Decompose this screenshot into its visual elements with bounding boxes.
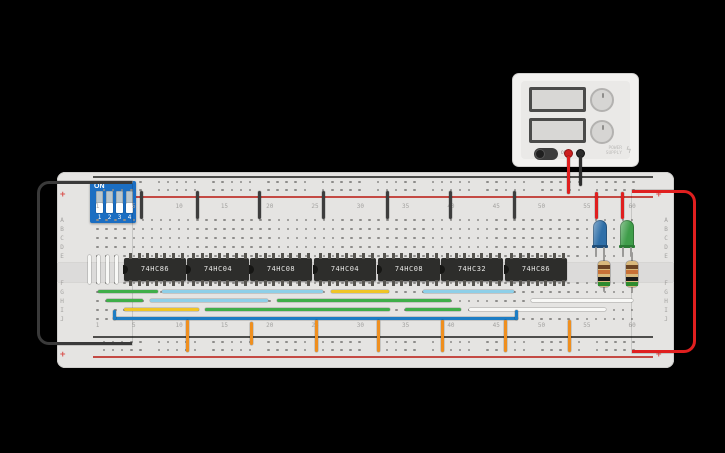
ic-pin <box>371 253 374 259</box>
breadboard-hole[interactable] <box>223 228 226 231</box>
led-blue-lead <box>595 247 597 257</box>
rail-hole[interactable] <box>404 349 407 352</box>
power-toggle-button[interactable] <box>534 148 558 160</box>
breadboard-hole[interactable] <box>359 219 362 222</box>
ic-label: 74HC04 <box>187 265 249 273</box>
ic-pin <box>426 280 429 286</box>
breadboard-hole[interactable] <box>214 237 217 240</box>
wire-j-blue-hook-left[interactable] <box>113 310 116 320</box>
breadboard-hole[interactable] <box>241 219 244 222</box>
column-label-top: 10 <box>176 203 183 210</box>
wire-led-blue-power[interactable] <box>595 192 598 219</box>
ic-pin <box>455 253 458 259</box>
ic-pin <box>226 253 229 259</box>
ic-pin <box>192 280 195 286</box>
ic-pin <box>446 253 449 259</box>
ic-pin <box>362 253 365 259</box>
breadboard-hole[interactable] <box>350 228 353 231</box>
ic-pin <box>281 280 284 286</box>
ic-pin <box>272 280 275 286</box>
ic-pin <box>336 280 339 286</box>
ic-pin <box>298 253 301 259</box>
wire-psu-positive[interactable] <box>567 156 570 194</box>
breadboard-hole[interactable] <box>205 228 208 231</box>
breadboard-hole[interactable] <box>223 237 226 240</box>
ic-pin <box>244 280 247 286</box>
breadboard-hole[interactable] <box>341 246 344 249</box>
breadboard-hole[interactable] <box>504 246 507 249</box>
rail-hole[interactable] <box>331 349 334 352</box>
breadboard-hole[interactable] <box>513 246 516 249</box>
ic-pin <box>417 253 420 259</box>
ic-pin <box>336 253 339 259</box>
wire-ground-drop-6[interactable] <box>504 320 507 352</box>
breadboard-hole[interactable] <box>196 237 199 240</box>
breadboard-hole[interactable] <box>350 237 353 240</box>
resistor-band <box>598 265 610 269</box>
breadboard-hole[interactable] <box>495 228 498 231</box>
rail-hole[interactable] <box>605 349 608 352</box>
breadboard-hole[interactable] <box>341 255 344 258</box>
ic-pin <box>392 280 395 286</box>
rail-hole[interactable] <box>404 181 407 184</box>
ic-pin <box>272 253 275 259</box>
wire-dip-3[interactable] <box>106 255 109 284</box>
power-supply-display-voltage <box>529 87 586 112</box>
ic-pin <box>392 253 395 259</box>
wire-g-cyan-1[interactable] <box>162 290 323 293</box>
wire-vcc-jumper-7[interactable] <box>513 191 516 219</box>
ic-pin <box>181 280 184 286</box>
breadboard-hole[interactable] <box>205 255 208 258</box>
column-label-top: 30 <box>357 203 364 210</box>
ic-pin <box>383 253 386 259</box>
breadboard-hole[interactable] <box>513 255 516 258</box>
breadboard-hole[interactable] <box>341 219 344 222</box>
ic-pin <box>307 253 310 259</box>
column-label-top: 55 <box>583 203 590 210</box>
breadboard-hole[interactable] <box>223 246 226 249</box>
breadboard-hole[interactable] <box>214 228 217 231</box>
ic-pin <box>409 280 412 286</box>
breadboard-hole[interactable] <box>196 282 199 285</box>
circuit-canvas: + + + + ON 1234 OFF POWER SUPPLY ϟ AABBC… <box>0 0 725 453</box>
knob-marker <box>602 125 604 130</box>
ic-label: 74HC08 <box>378 265 440 273</box>
breadboard-hole[interactable] <box>504 219 507 222</box>
rail-hole[interactable] <box>130 349 133 352</box>
ic-pin <box>553 253 556 259</box>
ic-74hc08-5[interactable]: 74HC08 <box>378 258 440 281</box>
ic-label: 74HC08 <box>250 265 312 273</box>
breadboard-hole[interactable] <box>341 228 344 231</box>
ic-pin <box>562 280 565 286</box>
wire-g-cyan-2[interactable] <box>423 290 514 293</box>
power-supply-display-current <box>529 118 586 143</box>
ic-pin <box>235 280 238 286</box>
wire-h-cyan[interactable] <box>150 299 268 302</box>
wire-vcc-jumper-4[interactable] <box>322 191 325 219</box>
wire-h-green-1[interactable] <box>106 299 143 302</box>
breadboard-hole[interactable] <box>513 228 516 231</box>
breadboard-hole[interactable] <box>495 237 498 240</box>
ic-pin <box>172 253 175 259</box>
ic-pin <box>138 253 141 259</box>
ic-pin <box>426 253 429 259</box>
ic-pin <box>527 280 530 286</box>
ic-pin <box>345 280 348 286</box>
breadboard-hole[interactable] <box>359 228 362 231</box>
ic-pin <box>455 280 458 286</box>
wire-i-white[interactable] <box>469 308 606 311</box>
ic-pin <box>298 280 301 286</box>
rail-hole[interactable] <box>404 341 407 344</box>
ic-pin <box>544 253 547 259</box>
ic-74hc32-6[interactable]: 74HC32 <box>441 258 503 281</box>
resistor-band <box>626 277 638 281</box>
breadboard-hole[interactable] <box>495 219 498 222</box>
ic-74hc04-4[interactable]: 74HC04 <box>314 258 376 281</box>
ic-pin <box>218 280 221 286</box>
ic-pin <box>155 280 158 286</box>
breadboard-hole[interactable] <box>205 219 208 222</box>
breadboard-hole[interactable] <box>513 300 516 303</box>
ic-pin <box>255 253 258 259</box>
ic-pin <box>328 280 331 286</box>
ic-pin <box>400 280 403 286</box>
led-blue[interactable] <box>593 220 607 248</box>
resistor-2[interactable] <box>626 261 638 287</box>
breadboard-hole[interactable] <box>196 219 199 222</box>
wire-vcc-jumper-5[interactable] <box>386 191 389 219</box>
ic-74hc04-2[interactable]: 74HC04 <box>187 258 249 281</box>
ic-pin <box>264 280 267 286</box>
ic-pin <box>409 253 412 259</box>
column-label-bottom: 45 <box>493 322 500 329</box>
ic-pin <box>435 253 438 259</box>
resistor-band <box>598 282 610 286</box>
rail-hole[interactable] <box>331 189 334 192</box>
column-label-bottom: 10 <box>176 322 183 329</box>
column-label-top: 45 <box>493 203 500 210</box>
ic-pin <box>472 280 475 286</box>
ic-74hc86-7[interactable]: 74HC86 <box>505 258 567 281</box>
rail-hole[interactable] <box>605 189 608 192</box>
ic-pin <box>218 253 221 259</box>
breadboard-hole[interactable] <box>350 255 353 258</box>
power-supply-brand: POWER SUPPLY <box>592 146 622 156</box>
ic-pin <box>498 280 501 286</box>
brand-line-2: SUPPLY <box>592 151 622 156</box>
resistor-band <box>626 265 638 269</box>
ic-pin <box>519 253 522 259</box>
ic-pin <box>446 280 449 286</box>
ic-pin <box>289 253 292 259</box>
breadboard-hole[interactable] <box>504 282 507 285</box>
ic-label: 74HC86 <box>505 265 567 273</box>
ic-pin <box>155 253 158 259</box>
ic-pin <box>181 253 184 259</box>
ic-pin <box>345 253 348 259</box>
wire-i-green-2[interactable] <box>405 308 461 311</box>
column-label-bottom: 35 <box>402 322 409 329</box>
toggle-knob <box>536 150 544 158</box>
breadboard-hole[interactable] <box>495 300 498 303</box>
ic-pin <box>519 280 522 286</box>
ic-pin <box>172 280 175 286</box>
ic-74hc86-1[interactable]: 74HC86 <box>124 258 186 281</box>
column-label-bottom: 55 <box>583 322 590 329</box>
breadboard-hole[interactable] <box>504 300 507 303</box>
lightning-icon: ϟ <box>626 146 631 156</box>
wire-vcc-jumper-2[interactable] <box>196 191 199 219</box>
ic-pin <box>353 280 356 286</box>
ic-pin <box>129 280 132 286</box>
column-label-top: 25 <box>311 203 318 210</box>
wire-i-green-1[interactable] <box>205 308 390 311</box>
breadboard-hole[interactable] <box>504 255 507 258</box>
breadboard-hole[interactable] <box>223 282 226 285</box>
breadboard-hole[interactable] <box>341 237 344 240</box>
ic-label: 74HC86 <box>124 265 186 273</box>
column-label-bottom: 40 <box>447 322 454 329</box>
resistor-band <box>626 270 638 274</box>
breadboard-hole[interactable] <box>495 246 498 249</box>
wire-ground-drop-4[interactable] <box>377 320 380 352</box>
wire-psu-negative[interactable] <box>579 156 582 186</box>
breadboard-hole[interactable] <box>214 246 217 249</box>
breadboard-hole[interactable] <box>196 255 199 258</box>
ic-74hc08-3[interactable]: 74HC08 <box>250 258 312 281</box>
ic-pin <box>498 253 501 259</box>
knob-marker <box>602 93 604 98</box>
wire-vcc-jumper-6[interactable] <box>449 191 452 219</box>
ic-pin <box>146 253 149 259</box>
wire-dip-1[interactable] <box>88 255 91 284</box>
breadboard-hole[interactable] <box>241 228 244 231</box>
ic-label: 74HC04 <box>314 265 376 273</box>
ic-pin <box>226 280 229 286</box>
wire-vcc-jumper-3[interactable] <box>258 191 261 219</box>
ic-pin <box>255 280 258 286</box>
wire-dip-4[interactable] <box>115 255 118 284</box>
wire-j-blue-hook-right[interactable] <box>515 310 518 320</box>
ic-pin <box>209 253 212 259</box>
wire-ground-drop-2[interactable] <box>250 322 253 345</box>
ic-pin <box>163 280 166 286</box>
ic-pin <box>435 280 438 286</box>
ic-pin <box>463 253 466 259</box>
rail-hole[interactable] <box>605 181 608 184</box>
resistor-1[interactable] <box>598 261 610 287</box>
ic-pin <box>307 280 310 286</box>
column-label-bottom: 50 <box>538 322 545 329</box>
breadboard-hole[interactable] <box>513 219 516 222</box>
ic-label: 74HC32 <box>441 265 503 273</box>
wire-ground-drop-1[interactable] <box>186 320 189 352</box>
ic-pin <box>480 280 483 286</box>
resistor-band <box>598 270 610 274</box>
led-green[interactable] <box>620 220 634 248</box>
ic-pin <box>510 253 513 259</box>
breadboard-hole[interactable] <box>214 219 217 222</box>
resistor-band <box>598 277 610 281</box>
ic-pin <box>281 253 284 259</box>
wire-vcc-jumper-1[interactable] <box>140 191 143 219</box>
ic-pin <box>129 253 132 259</box>
breadboard-hole[interactable] <box>205 246 208 249</box>
breadboard-hole[interactable] <box>196 228 199 231</box>
ic-pin <box>362 280 365 286</box>
bottom-positive-rail-line <box>93 356 653 358</box>
column-label-top: 15 <box>221 203 228 210</box>
breadboard-hole[interactable] <box>223 255 226 258</box>
ic-pin <box>489 280 492 286</box>
ic-pin <box>138 280 141 286</box>
column-label-bottom: 30 <box>357 322 364 329</box>
ic-pin <box>163 253 166 259</box>
breadboard-hole[interactable] <box>350 246 353 249</box>
breadboard-hole[interactable] <box>513 237 516 240</box>
ic-pin <box>319 280 322 286</box>
wire-h-white[interactable] <box>531 299 633 302</box>
led-green-lead <box>622 247 624 257</box>
wire-i-yellow[interactable] <box>124 308 199 311</box>
rail-hole[interactable] <box>605 341 608 344</box>
breadboard-hole[interactable] <box>205 282 208 285</box>
ic-pin <box>371 280 374 286</box>
ic-pin <box>235 253 238 259</box>
wire-ground-drop-5[interactable] <box>441 320 444 352</box>
ic-pin <box>328 253 331 259</box>
rail-hole[interactable] <box>331 341 334 344</box>
ic-pin <box>553 280 556 286</box>
column-label-bottom: 20 <box>266 322 273 329</box>
ic-pin <box>319 253 322 259</box>
top-positive-rail-line <box>93 196 653 198</box>
breadboard-hole[interactable] <box>504 237 507 240</box>
wire-power-loop-right[interactable] <box>632 190 696 353</box>
breadboard-hole[interactable] <box>359 246 362 249</box>
ic-pin <box>536 253 539 259</box>
ic-pin <box>544 280 547 286</box>
ic-pin <box>146 280 149 286</box>
breadboard-hole[interactable] <box>513 282 516 285</box>
current-knob[interactable] <box>590 120 614 144</box>
ic-pin <box>472 253 475 259</box>
column-label-top: 35 <box>402 203 409 210</box>
wire-ground-drop-7[interactable] <box>568 320 571 352</box>
wire-g-green-1[interactable] <box>98 290 158 293</box>
voltage-knob[interactable] <box>590 88 614 112</box>
breadboard-hole[interactable] <box>214 255 217 258</box>
ic-pin <box>400 253 403 259</box>
ic-pin <box>264 253 267 259</box>
column-label-top: 20 <box>266 203 273 210</box>
ic-pin <box>480 253 483 259</box>
breadboard-hole[interactable] <box>350 282 353 285</box>
wire-ground-drop-3[interactable] <box>315 320 318 352</box>
ic-pin <box>562 253 565 259</box>
plus-mark-bottom-left: + <box>60 350 65 360</box>
ic-pin <box>417 280 420 286</box>
breadboard-hole[interactable] <box>341 282 344 285</box>
ic-pin <box>489 253 492 259</box>
breadboard-hole[interactable] <box>241 246 244 249</box>
ic-pin <box>201 280 204 286</box>
breadboard-hole[interactable] <box>205 237 208 240</box>
ic-pin <box>192 253 195 259</box>
ic-pin <box>527 253 530 259</box>
ic-pin <box>201 253 204 259</box>
breadboard-hole[interactable] <box>504 228 507 231</box>
breadboard-hole[interactable] <box>214 282 217 285</box>
column-label-bottom: 15 <box>221 322 228 329</box>
column-label-top: 5 <box>132 203 136 210</box>
wire-g-yellow[interactable] <box>331 290 389 293</box>
resistor-band <box>626 282 638 286</box>
ic-pin <box>289 280 292 286</box>
column-label-top: 50 <box>538 203 545 210</box>
ic-pin <box>510 280 513 286</box>
ic-pin <box>209 280 212 286</box>
rail-hole[interactable] <box>331 181 334 184</box>
breadboard-hole[interactable] <box>241 237 244 240</box>
breadboard-hole[interactable] <box>359 237 362 240</box>
wire-dip-2[interactable] <box>97 255 100 284</box>
ic-pin <box>353 253 356 259</box>
wire-led-green-power[interactable] <box>621 192 624 219</box>
breadboard-hole[interactable] <box>223 219 226 222</box>
ic-pin <box>383 280 386 286</box>
column-label-bottom: 5 <box>132 322 136 329</box>
wire-h-green-2[interactable] <box>277 299 451 302</box>
rail-hole[interactable] <box>404 189 407 192</box>
ic-pin <box>463 280 466 286</box>
breadboard-hole[interactable] <box>350 219 353 222</box>
breadboard-hole[interactable] <box>196 246 199 249</box>
ic-pin <box>536 280 539 286</box>
ic-pin <box>244 253 247 259</box>
